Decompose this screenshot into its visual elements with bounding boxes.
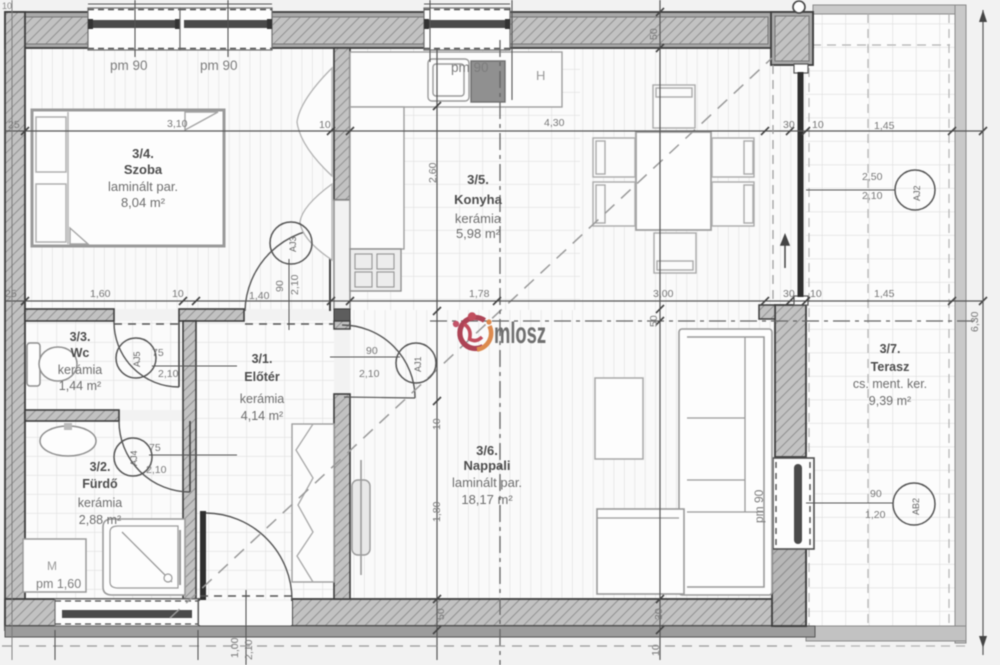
svg-text:1,40: 1,40 (249, 290, 270, 302)
svg-text:8,04 m²: 8,04 m² (121, 195, 166, 210)
svg-text:90: 90 (366, 345, 378, 357)
svg-text:Fürdő: Fürdő (82, 477, 118, 491)
svg-text:3/4.: 3/4. (132, 146, 154, 161)
svg-text:Wc: Wc (71, 346, 90, 360)
svg-text:1,80: 1,80 (431, 501, 443, 522)
svg-text:3,10: 3,10 (167, 118, 188, 130)
svg-text:50: 50 (648, 315, 660, 327)
svg-text:2,10: 2,10 (359, 368, 380, 380)
svg-text:3/2.: 3/2. (90, 460, 111, 474)
svg-text:1,45: 1,45 (874, 288, 895, 300)
svg-text:kerámia: kerámia (78, 496, 123, 510)
svg-text:pm 90: pm 90 (752, 489, 766, 523)
svg-text:50: 50 (435, 608, 447, 620)
svg-text:H: H (536, 68, 545, 83)
svg-text:Konyha: Konyha (454, 192, 502, 207)
svg-text:4,30: 4,30 (544, 117, 565, 129)
svg-text:AJ4: AJ4 (129, 450, 139, 466)
svg-text:5,98 m²: 5,98 m² (456, 226, 501, 241)
svg-text:9,39 m²: 9,39 m² (869, 394, 911, 408)
svg-text:1,45: 1,45 (874, 120, 895, 132)
svg-text:Nappali: Nappali (464, 458, 511, 473)
svg-text:30: 30 (783, 119, 795, 131)
svg-text:AJ5: AJ5 (132, 351, 142, 367)
svg-text:pm 90: pm 90 (200, 58, 238, 73)
svg-text:3/7.: 3/7. (880, 342, 901, 356)
svg-text:AJ3: AJ3 (288, 236, 298, 252)
svg-text:mlosz: mlosz (494, 317, 546, 350)
svg-text:3/1.: 3/1. (252, 352, 273, 366)
svg-text:3/3.: 3/3. (70, 330, 91, 344)
svg-text:Terasz: Terasz (871, 360, 910, 374)
svg-text:2,60: 2,60 (427, 162, 439, 183)
svg-text:Szoba: Szoba (124, 162, 163, 177)
svg-text:10: 10 (172, 288, 184, 300)
svg-text:1,78: 1,78 (469, 288, 490, 300)
svg-text:AB2: AB2 (911, 498, 921, 515)
svg-text:3/6.: 3/6. (476, 443, 498, 458)
svg-text:1,44 m²: 1,44 m² (59, 379, 101, 393)
svg-text:3,00: 3,00 (653, 288, 674, 300)
svg-text:1,60: 1,60 (90, 288, 111, 300)
svg-text:AJ1: AJ1 (413, 356, 423, 372)
svg-text:2,10: 2,10 (146, 464, 167, 476)
svg-text:50: 50 (648, 28, 660, 40)
svg-text:AJ2: AJ2 (912, 185, 922, 201)
svg-text:laminált par.: laminált par. (452, 475, 522, 490)
svg-text:18,17 m²: 18,17 m² (461, 492, 513, 507)
svg-text:kerámia: kerámia (240, 392, 285, 406)
svg-text:kerámia: kerámia (455, 211, 502, 226)
svg-text:75: 75 (149, 442, 161, 454)
svg-text:90: 90 (870, 488, 882, 500)
svg-text:2,10: 2,10 (862, 190, 883, 202)
svg-text:1,00: 1,00 (229, 637, 241, 658)
svg-text:10: 10 (810, 288, 822, 300)
svg-text:75: 75 (152, 347, 164, 359)
svg-text:1,20: 1,20 (865, 509, 886, 521)
svg-text:25: 25 (5, 288, 17, 300)
svg-text:10: 10 (2, 1, 12, 11)
svg-text:pm 1,60: pm 1,60 (36, 577, 81, 591)
svg-text:90: 90 (274, 280, 286, 292)
svg-text:Előtér: Előtér (244, 370, 280, 384)
svg-text:2,50: 2,50 (862, 171, 883, 183)
svg-text:10: 10 (812, 119, 824, 131)
svg-text:2,10: 2,10 (158, 368, 179, 380)
svg-text:cs. ment. ker.: cs. ment. ker. (853, 377, 927, 391)
svg-text:10: 10 (319, 119, 331, 131)
svg-text:3/5.: 3/5. (467, 172, 489, 187)
svg-text:kerámia: kerámia (58, 363, 103, 377)
svg-text:10: 10 (431, 418, 443, 430)
svg-text:pm 90: pm 90 (451, 60, 489, 75)
svg-text:6,30: 6,30 (969, 311, 981, 332)
svg-text:2,10: 2,10 (243, 639, 255, 660)
svg-text:30: 30 (653, 608, 665, 620)
svg-text:2,10: 2,10 (289, 274, 301, 295)
svg-text:M: M (47, 559, 57, 573)
svg-text:pm 90: pm 90 (110, 58, 148, 73)
svg-text:laminált par.: laminált par. (108, 179, 178, 194)
svg-text:25: 25 (8, 119, 20, 131)
svg-text:2,88 m²: 2,88 m² (79, 513, 121, 527)
svg-text:4,14 m²: 4,14 m² (241, 409, 283, 423)
svg-text:30: 30 (783, 288, 795, 300)
